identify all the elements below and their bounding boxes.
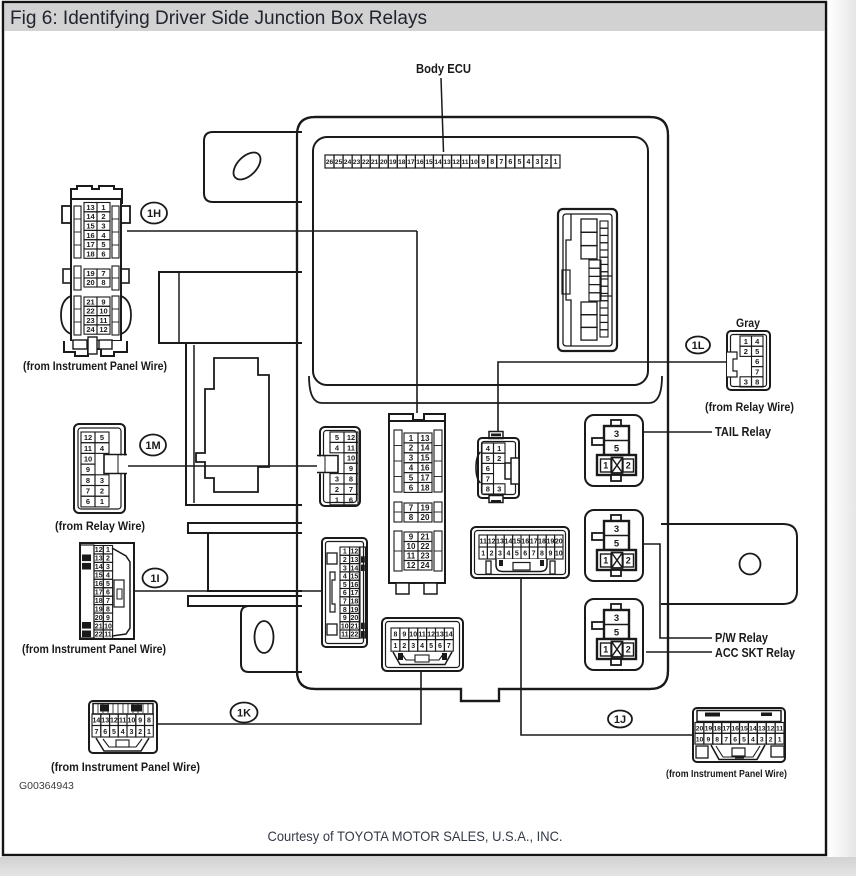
svg-text:10: 10 bbox=[407, 542, 416, 551]
svg-text:1: 1 bbox=[409, 434, 414, 443]
svg-text:13: 13 bbox=[496, 539, 504, 546]
svg-text:1: 1 bbox=[101, 203, 105, 212]
svg-text:17: 17 bbox=[95, 590, 103, 597]
svg-text:3: 3 bbox=[129, 729, 133, 736]
svg-text:19: 19 bbox=[95, 606, 103, 613]
svg-text:Fig 6: Identifying Driver Side: Fig 6: Identifying Driver Side Junction … bbox=[10, 8, 427, 29]
svg-text:7: 7 bbox=[94, 729, 98, 736]
svg-text:2: 2 bbox=[769, 737, 773, 744]
svg-text:15: 15 bbox=[421, 454, 430, 463]
svg-text:5: 5 bbox=[742, 737, 746, 744]
svg-text:11: 11 bbox=[462, 159, 469, 166]
svg-text:12: 12 bbox=[347, 433, 355, 442]
svg-text:(from Instrument Panel Wire): (from Instrument Panel Wire) bbox=[22, 642, 166, 656]
svg-text:15: 15 bbox=[86, 221, 94, 230]
svg-text:(from Instrument Panel Wire): (from Instrument Panel Wire) bbox=[51, 760, 200, 774]
svg-text:6: 6 bbox=[343, 590, 347, 597]
svg-text:20: 20 bbox=[380, 159, 388, 166]
svg-text:21: 21 bbox=[351, 623, 359, 630]
svg-text:9: 9 bbox=[138, 717, 142, 724]
svg-text:1: 1 bbox=[603, 556, 608, 566]
svg-text:6: 6 bbox=[508, 159, 512, 166]
svg-text:4: 4 bbox=[526, 159, 530, 166]
svg-text:21: 21 bbox=[95, 623, 103, 630]
svg-text:15: 15 bbox=[740, 726, 748, 733]
svg-text:10: 10 bbox=[99, 307, 107, 316]
svg-text:14: 14 bbox=[445, 632, 453, 639]
svg-text:2: 2 bbox=[626, 645, 631, 655]
svg-text:12: 12 bbox=[351, 549, 359, 556]
svg-text:10: 10 bbox=[128, 717, 136, 724]
svg-text:3: 3 bbox=[100, 476, 104, 485]
svg-text:16: 16 bbox=[351, 582, 359, 589]
svg-text:(from Relay Wire): (from Relay Wire) bbox=[705, 400, 794, 414]
svg-text:9: 9 bbox=[707, 737, 711, 744]
svg-text:7: 7 bbox=[532, 551, 536, 558]
svg-text:17: 17 bbox=[86, 240, 94, 249]
svg-text:4: 4 bbox=[751, 737, 755, 744]
svg-text:24: 24 bbox=[421, 561, 430, 570]
svg-text:10: 10 bbox=[555, 551, 563, 558]
svg-text:9: 9 bbox=[402, 632, 406, 639]
svg-text:2: 2 bbox=[409, 444, 414, 453]
svg-text:6: 6 bbox=[733, 737, 737, 744]
svg-text:17: 17 bbox=[530, 539, 538, 546]
svg-text:3: 3 bbox=[343, 565, 347, 572]
svg-text:10: 10 bbox=[696, 737, 704, 744]
svg-text:7: 7 bbox=[106, 598, 110, 605]
svg-text:14: 14 bbox=[421, 444, 430, 453]
svg-text:5: 5 bbox=[100, 433, 104, 442]
svg-text:19: 19 bbox=[351, 607, 359, 614]
svg-text:5: 5 bbox=[515, 551, 519, 558]
svg-text:2: 2 bbox=[335, 485, 339, 494]
svg-text:9: 9 bbox=[548, 551, 552, 558]
svg-text:5: 5 bbox=[755, 347, 759, 356]
svg-text:1: 1 bbox=[147, 729, 151, 736]
svg-text:3: 3 bbox=[535, 159, 539, 166]
svg-text:(from Relay Wire): (from Relay Wire) bbox=[55, 519, 145, 533]
svg-text:1: 1 bbox=[497, 444, 501, 453]
svg-text:10: 10 bbox=[347, 454, 355, 463]
svg-text:10: 10 bbox=[84, 454, 92, 463]
svg-text:8: 8 bbox=[343, 607, 347, 614]
svg-text:8: 8 bbox=[101, 278, 105, 287]
svg-text:12: 12 bbox=[84, 433, 92, 442]
svg-text:12: 12 bbox=[427, 632, 435, 639]
svg-text:13: 13 bbox=[421, 434, 430, 443]
svg-text:18: 18 bbox=[95, 598, 103, 605]
svg-text:1: 1 bbox=[778, 737, 782, 744]
svg-text:21: 21 bbox=[86, 297, 94, 306]
svg-text:2: 2 bbox=[138, 729, 142, 736]
svg-text:5: 5 bbox=[335, 433, 339, 442]
svg-text:8: 8 bbox=[715, 737, 719, 744]
svg-text:19: 19 bbox=[547, 539, 555, 546]
svg-text:9: 9 bbox=[409, 533, 414, 542]
svg-text:11: 11 bbox=[100, 316, 108, 325]
svg-text:23: 23 bbox=[421, 552, 430, 561]
svg-text:5: 5 bbox=[486, 454, 490, 463]
svg-text:4: 4 bbox=[121, 729, 125, 736]
svg-text:11: 11 bbox=[104, 632, 112, 639]
svg-text:1: 1 bbox=[603, 461, 608, 471]
svg-text:8: 8 bbox=[540, 551, 544, 558]
svg-text:20: 20 bbox=[95, 615, 103, 622]
svg-text:5: 5 bbox=[614, 628, 620, 639]
svg-text:7: 7 bbox=[409, 504, 414, 513]
svg-text:18: 18 bbox=[713, 726, 721, 733]
svg-text:4: 4 bbox=[420, 643, 424, 650]
svg-text:23: 23 bbox=[86, 316, 94, 325]
svg-text:12: 12 bbox=[452, 159, 460, 166]
svg-text:18: 18 bbox=[421, 483, 430, 492]
svg-text:7: 7 bbox=[486, 474, 490, 483]
svg-text:15: 15 bbox=[95, 573, 103, 580]
svg-text:5: 5 bbox=[112, 729, 116, 736]
svg-text:3: 3 bbox=[101, 221, 105, 230]
svg-text:5: 5 bbox=[106, 581, 110, 588]
svg-text:8: 8 bbox=[755, 378, 759, 387]
svg-text:23: 23 bbox=[353, 159, 361, 166]
svg-text:9: 9 bbox=[343, 615, 347, 622]
svg-text:19: 19 bbox=[389, 159, 397, 166]
svg-text:6: 6 bbox=[409, 483, 414, 492]
svg-text:8: 8 bbox=[86, 476, 90, 485]
svg-text:14: 14 bbox=[93, 717, 101, 724]
svg-text:3: 3 bbox=[614, 429, 619, 440]
svg-text:3: 3 bbox=[614, 613, 619, 624]
svg-text:8: 8 bbox=[147, 717, 151, 724]
svg-text:2: 2 bbox=[626, 556, 631, 566]
svg-text:14: 14 bbox=[351, 565, 359, 572]
svg-text:12: 12 bbox=[99, 325, 107, 334]
svg-text:3: 3 bbox=[760, 737, 764, 744]
svg-text:13: 13 bbox=[436, 632, 444, 639]
svg-text:20: 20 bbox=[351, 615, 359, 622]
svg-text:22: 22 bbox=[95, 632, 103, 639]
svg-text:12: 12 bbox=[110, 717, 118, 724]
svg-text:7: 7 bbox=[499, 159, 503, 166]
svg-text:15: 15 bbox=[513, 539, 521, 546]
svg-text:8: 8 bbox=[486, 485, 490, 494]
svg-text:1: 1 bbox=[343, 549, 347, 556]
svg-text:17: 17 bbox=[407, 159, 415, 166]
svg-text:22: 22 bbox=[421, 542, 430, 551]
svg-text:2: 2 bbox=[343, 557, 347, 564]
svg-text:21: 21 bbox=[421, 533, 430, 542]
svg-text:2: 2 bbox=[402, 643, 406, 650]
svg-text:14: 14 bbox=[505, 539, 513, 546]
svg-text:18: 18 bbox=[86, 249, 94, 258]
svg-text:11: 11 bbox=[119, 717, 127, 724]
svg-text:6: 6 bbox=[349, 495, 353, 504]
svg-text:5: 5 bbox=[101, 240, 105, 249]
svg-text:6: 6 bbox=[106, 590, 110, 597]
svg-text:4: 4 bbox=[409, 464, 414, 473]
svg-text:5: 5 bbox=[429, 643, 433, 650]
svg-text:13: 13 bbox=[443, 159, 451, 166]
svg-text:(from Instrument Panel Wire): (from Instrument Panel Wire) bbox=[666, 768, 787, 780]
svg-text:4: 4 bbox=[506, 551, 510, 558]
svg-text:Courtesy of TOYOTA MOTOR SALES: Courtesy of TOYOTA MOTOR SALES, U.S.A., … bbox=[268, 828, 563, 844]
svg-text:20: 20 bbox=[86, 278, 94, 287]
svg-text:1: 1 bbox=[100, 497, 104, 506]
svg-text:20: 20 bbox=[555, 539, 563, 546]
svg-text:17: 17 bbox=[351, 590, 359, 597]
svg-text:TAIL Relay: TAIL Relay bbox=[715, 425, 771, 439]
svg-text:13: 13 bbox=[351, 557, 359, 564]
svg-text:2: 2 bbox=[490, 551, 494, 558]
svg-text:14: 14 bbox=[434, 159, 442, 166]
svg-text:5: 5 bbox=[614, 444, 620, 455]
svg-text:22: 22 bbox=[351, 632, 359, 639]
svg-text:3: 3 bbox=[498, 551, 502, 558]
svg-text:15: 15 bbox=[351, 574, 359, 581]
svg-text:25: 25 bbox=[335, 159, 343, 166]
svg-text:24: 24 bbox=[344, 159, 352, 166]
svg-text:1: 1 bbox=[744, 337, 748, 346]
svg-text:19: 19 bbox=[421, 504, 430, 513]
svg-text:22: 22 bbox=[86, 307, 94, 316]
svg-text:3: 3 bbox=[744, 378, 748, 387]
svg-text:1L: 1L bbox=[692, 340, 705, 352]
svg-text:2: 2 bbox=[101, 212, 105, 221]
svg-text:6: 6 bbox=[523, 551, 527, 558]
svg-text:13: 13 bbox=[86, 203, 94, 212]
svg-text:10: 10 bbox=[341, 623, 349, 630]
svg-text:20: 20 bbox=[421, 513, 430, 522]
svg-text:G00364943: G00364943 bbox=[19, 780, 74, 792]
svg-text:19: 19 bbox=[705, 726, 713, 733]
svg-text:6: 6 bbox=[101, 249, 105, 258]
svg-text:9: 9 bbox=[106, 615, 110, 622]
svg-text:6: 6 bbox=[486, 464, 490, 473]
svg-text:12: 12 bbox=[488, 539, 496, 546]
svg-text:3: 3 bbox=[106, 564, 110, 571]
svg-text:6: 6 bbox=[86, 497, 90, 506]
svg-text:5: 5 bbox=[517, 159, 521, 166]
svg-text:1: 1 bbox=[481, 551, 485, 558]
svg-text:3: 3 bbox=[497, 485, 501, 494]
svg-text:(from Instrument Panel Wire): (from Instrument Panel Wire) bbox=[23, 359, 167, 373]
svg-text:1: 1 bbox=[603, 645, 608, 655]
svg-text:18: 18 bbox=[398, 159, 406, 166]
svg-text:1M: 1M bbox=[145, 440, 160, 452]
svg-text:14: 14 bbox=[95, 564, 103, 571]
svg-text:8: 8 bbox=[106, 606, 110, 613]
svg-text:16: 16 bbox=[95, 581, 103, 588]
svg-text:3: 3 bbox=[409, 454, 414, 463]
svg-text:4: 4 bbox=[106, 573, 110, 580]
svg-text:7: 7 bbox=[724, 737, 728, 744]
svg-text:1: 1 bbox=[335, 495, 339, 504]
svg-text:11: 11 bbox=[776, 726, 783, 733]
svg-text:7: 7 bbox=[755, 367, 759, 376]
svg-text:ACC SKT Relay: ACC SKT Relay bbox=[715, 646, 795, 660]
svg-text:13: 13 bbox=[101, 717, 109, 724]
svg-text:16: 16 bbox=[731, 726, 739, 733]
svg-text:21: 21 bbox=[371, 159, 379, 166]
svg-text:13: 13 bbox=[758, 726, 766, 733]
svg-text:18: 18 bbox=[351, 599, 359, 606]
svg-text:7: 7 bbox=[86, 487, 90, 496]
svg-text:7: 7 bbox=[343, 599, 347, 606]
svg-text:14: 14 bbox=[86, 212, 95, 221]
svg-text:8: 8 bbox=[490, 159, 494, 166]
svg-text:6: 6 bbox=[755, 357, 759, 366]
svg-text:24: 24 bbox=[86, 325, 95, 334]
svg-text:13: 13 bbox=[95, 556, 103, 563]
svg-text:26: 26 bbox=[326, 159, 334, 166]
svg-text:10: 10 bbox=[409, 632, 417, 639]
svg-text:2: 2 bbox=[626, 461, 631, 471]
svg-text:11: 11 bbox=[84, 444, 92, 453]
svg-text:16: 16 bbox=[416, 159, 424, 166]
svg-text:9: 9 bbox=[101, 297, 105, 306]
svg-text:17: 17 bbox=[722, 726, 730, 733]
svg-text:2: 2 bbox=[545, 159, 549, 166]
svg-text:9: 9 bbox=[481, 159, 485, 166]
svg-text:16: 16 bbox=[521, 539, 529, 546]
svg-text:Gray: Gray bbox=[736, 318, 761, 330]
svg-text:2: 2 bbox=[100, 487, 104, 496]
svg-text:7: 7 bbox=[349, 485, 353, 494]
svg-text:8: 8 bbox=[409, 513, 414, 522]
svg-text:11: 11 bbox=[418, 632, 426, 639]
svg-text:12: 12 bbox=[767, 726, 775, 733]
svg-text:1H: 1H bbox=[147, 208, 161, 220]
svg-text:7: 7 bbox=[447, 643, 451, 650]
svg-text:1: 1 bbox=[393, 643, 397, 650]
svg-text:20: 20 bbox=[696, 726, 704, 733]
svg-text:1J: 1J bbox=[614, 714, 626, 726]
svg-text:5: 5 bbox=[409, 473, 414, 482]
svg-text:10: 10 bbox=[104, 623, 112, 630]
svg-text:6: 6 bbox=[438, 643, 442, 650]
svg-text:12: 12 bbox=[95, 547, 103, 554]
svg-text:16: 16 bbox=[86, 231, 94, 240]
svg-text:11: 11 bbox=[407, 552, 416, 561]
svg-text:10: 10 bbox=[471, 159, 479, 166]
svg-text:19: 19 bbox=[86, 269, 94, 278]
svg-text:Body ECU: Body ECU bbox=[416, 61, 471, 76]
svg-text:22: 22 bbox=[362, 159, 370, 166]
svg-text:7: 7 bbox=[101, 269, 105, 278]
svg-text:12: 12 bbox=[407, 561, 416, 570]
svg-text:4: 4 bbox=[343, 574, 347, 581]
svg-text:15: 15 bbox=[425, 159, 433, 166]
svg-text:11: 11 bbox=[479, 539, 487, 546]
svg-text:2: 2 bbox=[106, 556, 110, 563]
svg-text:2: 2 bbox=[497, 454, 501, 463]
svg-text:8: 8 bbox=[349, 475, 353, 484]
svg-text:11: 11 bbox=[341, 632, 349, 639]
svg-text:14: 14 bbox=[749, 726, 757, 733]
svg-text:8: 8 bbox=[393, 632, 397, 639]
svg-text:3: 3 bbox=[411, 643, 415, 650]
svg-text:3: 3 bbox=[335, 475, 339, 484]
svg-text:1I: 1I bbox=[150, 573, 159, 585]
svg-text:5: 5 bbox=[614, 539, 620, 550]
svg-text:6: 6 bbox=[103, 729, 107, 736]
svg-text:9: 9 bbox=[349, 464, 353, 473]
svg-text:9: 9 bbox=[86, 465, 90, 474]
svg-text:18: 18 bbox=[538, 539, 546, 546]
svg-text:3: 3 bbox=[614, 524, 619, 535]
svg-text:P/W Relay: P/W Relay bbox=[715, 631, 768, 645]
svg-text:2: 2 bbox=[744, 347, 748, 356]
svg-text:1: 1 bbox=[106, 547, 110, 554]
svg-text:5: 5 bbox=[343, 582, 347, 589]
svg-text:11: 11 bbox=[347, 443, 355, 452]
svg-text:1: 1 bbox=[554, 159, 558, 166]
svg-text:1K: 1K bbox=[237, 708, 251, 720]
svg-text:16: 16 bbox=[421, 464, 430, 473]
svg-text:17: 17 bbox=[421, 473, 430, 482]
